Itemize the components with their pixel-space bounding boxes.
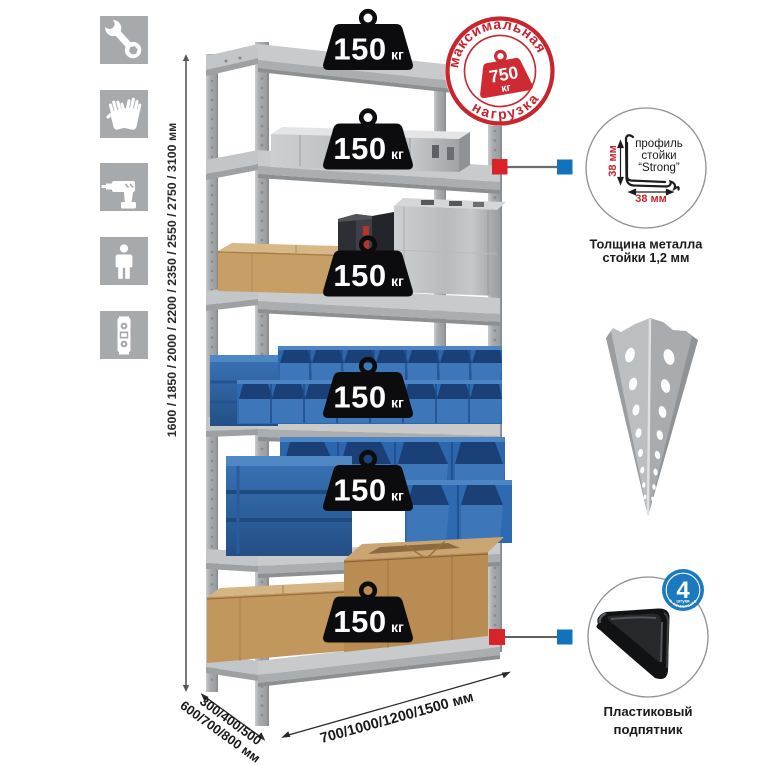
svg-text:1600 / 1850 / 2000 / 2200 / 23: 1600 / 1850 / 2000 / 2200 / 2350 / 2550 … — [165, 123, 179, 438]
svg-text:штуки: штуки — [676, 599, 690, 604]
svg-text:стойки 1,2 мм: стойки 1,2 мм — [602, 250, 689, 265]
svg-text:Пластиковый: Пластиковый — [603, 704, 692, 719]
svg-text:профиль: профиль — [635, 138, 683, 150]
svg-text:“Strong”: “Strong” — [638, 162, 680, 174]
svg-text:38 мм: 38 мм — [635, 193, 667, 205]
svg-text:подпятник: подпятник — [613, 722, 682, 737]
svg-text:38 мм: 38 мм — [607, 145, 619, 177]
svg-text:стойки: стойки — [641, 150, 676, 162]
